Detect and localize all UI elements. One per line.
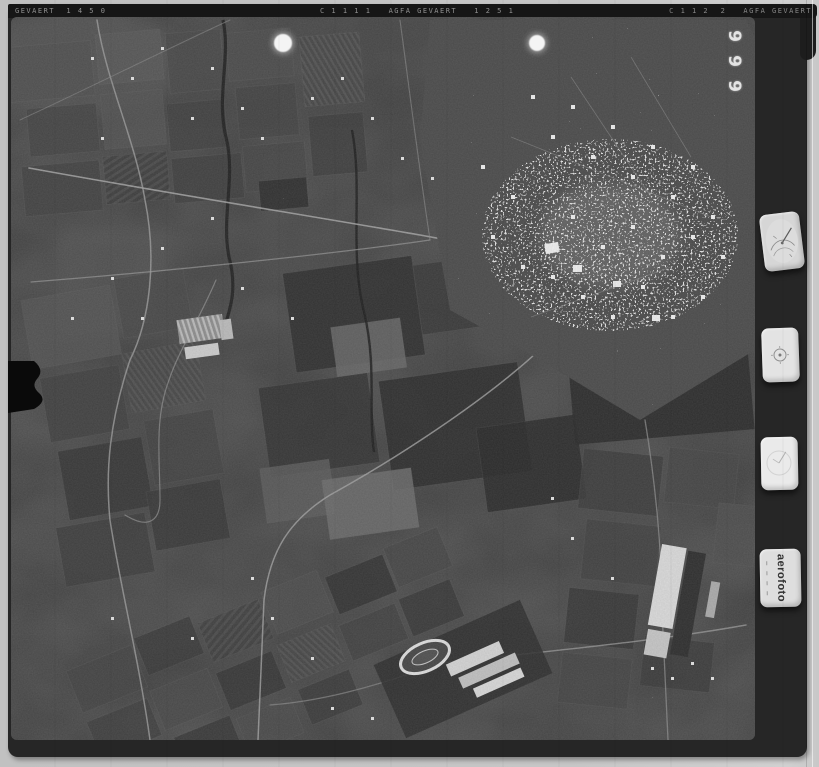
clock-tab: [761, 437, 799, 491]
clock-face-icon: [761, 437, 799, 491]
altimeter-tab: [759, 211, 806, 272]
film-edge-text-center: C 1 1 1 1 AGFA GEVAERT 1 2 5 1: [320, 7, 514, 15]
paper-crease: [806, 0, 807, 767]
film-grain: [11, 17, 755, 740]
fiducial-dot-right: [529, 35, 545, 51]
film-notch: [8, 356, 50, 418]
frame-digit: 9: [724, 23, 744, 49]
aerofoto-tab: aerofoto: [759, 549, 801, 608]
frame-digit: 9: [724, 73, 744, 99]
aerial-photograph: [11, 17, 755, 740]
paper-highlight: [812, 0, 813, 767]
photo-print-sheet: GEVAERT 1 4 5 0 C 1 1 1 1 AGFA GEVAERT 1…: [0, 0, 819, 767]
aerial-photo-scene: [11, 17, 755, 740]
film-edge-strip: GEVAERT 1 4 5 0 C 1 1 1 1 AGFA GEVAERT 1…: [8, 4, 817, 18]
level-bubble-icon: [761, 327, 800, 382]
frame-number: 9 9 9: [721, 26, 747, 96]
fiducial-dot-left: [274, 34, 292, 52]
level-tab: [761, 327, 800, 382]
frame-digit: 9: [724, 48, 744, 74]
film-edge-text-right: C 1 1 2 2 AGFA GEVAERT: [669, 7, 812, 15]
altimeter-dial-icon: [759, 211, 806, 272]
film-edge-text-left: GEVAERT 1 4 5 0: [15, 7, 106, 15]
aerofoto-label: aerofoto: [774, 554, 787, 602]
